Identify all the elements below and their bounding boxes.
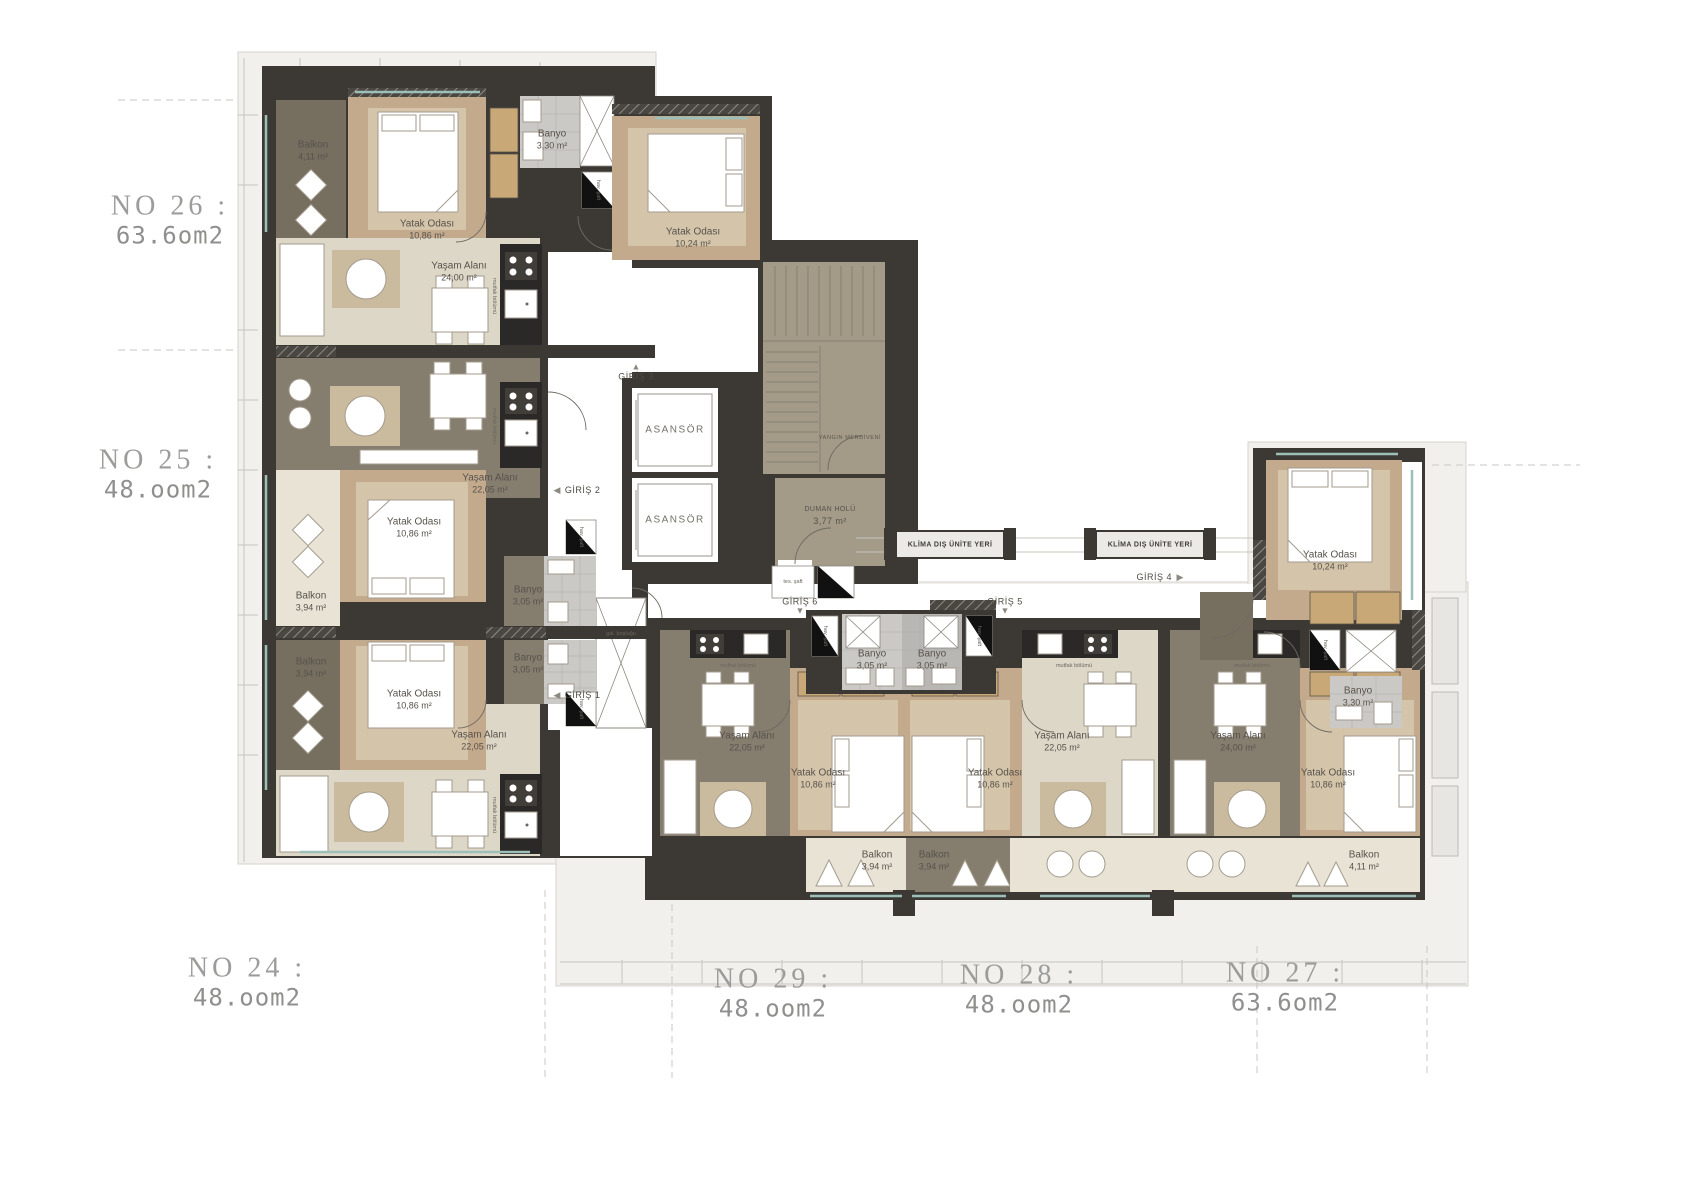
room-name: Yaşam Alanı xyxy=(1210,730,1265,743)
room-label-balkon-25: Balkon 3,94 m² xyxy=(296,590,327,615)
room-area: 10,86 m² xyxy=(968,780,1022,792)
unit-no: NO 27 : xyxy=(1226,958,1344,989)
room-label-yatak-29: Yatak Odası 10,86 m² xyxy=(791,767,845,792)
kitchen-label: mutfak bölümü xyxy=(491,278,497,314)
room-name: Yatak Odası xyxy=(387,516,441,529)
kitchen-label: mutfak bölümü xyxy=(491,797,497,833)
entrance-label: GİRİŞ 3 xyxy=(618,372,654,382)
room-area: 3,05 m² xyxy=(513,665,544,677)
unit-label-27: NO 27 : 63.6om2 xyxy=(1226,958,1344,1015)
room-name: Yatak Odası xyxy=(1301,767,1355,780)
room-name: Yaşam Alanı xyxy=(462,472,517,485)
room-label-balkon-27: Balkon 4,11 m² xyxy=(1349,849,1380,874)
room-label-yasam-29: Yaşam Alanı 22,05 m² xyxy=(719,730,774,755)
room-label-banyo-25: Banyo 3,05 m² xyxy=(513,584,544,609)
room-name: Yaşam Alanı xyxy=(1034,730,1089,743)
unit-area: 48.oom2 xyxy=(99,476,217,502)
room-name: Yaşam Alanı xyxy=(451,729,506,742)
shaft-label-hav: hav. şaft xyxy=(578,527,584,547)
kitchen-label: mutfak bölümü xyxy=(491,408,497,444)
kitchen-label: mutfak bölümü xyxy=(1234,663,1270,669)
room-name: Banyo xyxy=(917,648,948,661)
triangle-down-icon: ▼ xyxy=(782,607,818,616)
room-area: 3,05 m² xyxy=(857,661,888,673)
kitchen-label: mutfak bölümü xyxy=(1056,663,1092,669)
entrance-1: ◀ GİRİŞ 1 xyxy=(554,685,601,703)
room-label-yatak-24: Yatak Odası 10,86 m² xyxy=(387,688,441,713)
room-area: 10,86 m² xyxy=(387,701,441,713)
unit-label-28: NO 28 : 48.oom2 xyxy=(960,960,1078,1017)
room-name: Banyo xyxy=(513,652,544,665)
unit-no: NO 25 : xyxy=(99,445,217,476)
room-area: 10,24 m² xyxy=(666,239,720,251)
room-area: 24,00 m² xyxy=(1210,743,1265,755)
triangle-right-icon: ▶ xyxy=(1177,572,1184,582)
room-area: 10,86 m² xyxy=(791,780,845,792)
room-area: 3,94 m² xyxy=(296,669,327,681)
elevator-label-1: ASANSÖR xyxy=(645,425,704,436)
room-name: Balkon xyxy=(1349,849,1380,862)
fire-stair-label: YANGIN MERDİVENİ xyxy=(819,435,881,441)
room-name: Banyo xyxy=(1343,685,1374,698)
triangle-down-icon: ▼ xyxy=(987,607,1023,616)
room-label-balkon-28: Balkon 3,94 m² xyxy=(919,849,950,874)
room-area: 22,05 m² xyxy=(719,743,774,755)
room-name: Banyo xyxy=(513,584,544,597)
triangle-left-icon: ◀ xyxy=(554,690,561,700)
shaft-label-hav: hav. şaft xyxy=(578,699,584,719)
unit-label-26: NO 26 : 63.6om2 xyxy=(111,191,229,248)
entrance-5: GİRİŞ 5 ▼ xyxy=(987,597,1023,616)
floor-plan-canvas xyxy=(0,0,1697,1200)
unit-label-29: NO 29 : 48.oom2 xyxy=(714,964,832,1021)
room-name: Yaşam Alanı xyxy=(719,730,774,743)
room-label-yasam-28: Yaşam Alanı 22,05 m² xyxy=(1034,730,1089,755)
shaft-label-tes: tes. şaft xyxy=(783,579,802,585)
room-name: Yatak Odası xyxy=(968,767,1022,780)
shaft-label-hav: hav. şaft xyxy=(595,180,601,200)
room-name: Balkon xyxy=(298,139,329,152)
entrance-label: GİRİŞ 2 xyxy=(565,485,601,495)
room-area: 22,05 m² xyxy=(1034,743,1089,755)
room-area: 3,30 m² xyxy=(537,141,568,153)
room-label-yasam-26: Yaşam Alanı 24,00 m² xyxy=(431,260,486,285)
unit-no: NO 29 : xyxy=(714,964,832,995)
room-label-yatak-28: Yatak Odası 10,86 m² xyxy=(968,767,1022,792)
entrance-3: ▲ GİRİŞ 3 xyxy=(618,363,654,382)
entrance-4: GİRİŞ 4 ▶ xyxy=(1137,567,1184,585)
room-area: 10,86 m² xyxy=(387,529,441,541)
room-label-banyo-29: Banyo 3,05 m² xyxy=(857,648,888,673)
room-label-banyo-27: Banyo 3,30 m² xyxy=(1343,685,1374,710)
room-area: 22,05 m² xyxy=(462,485,517,497)
klima-label-1: KLİMA DIŞ ÜNİTE YERİ xyxy=(908,542,993,549)
room-area: 3,94 m² xyxy=(862,862,893,874)
elevator-label-2: ASANSÖR xyxy=(645,515,704,526)
room-name: Balkon xyxy=(862,849,893,862)
triangle-up-icon: ▲ xyxy=(618,363,654,372)
shaft-label-hav: hav. şaft xyxy=(1322,640,1328,660)
gallery-void-label: gal. boşluğu xyxy=(606,631,636,637)
room-name: DUMAN HOLÜ xyxy=(804,505,855,515)
room-label-yatak1-27: Yatak Odası 10,86 m² xyxy=(1301,767,1355,792)
room-area: 4,11 m² xyxy=(1349,862,1380,874)
unit-no: NO 26 : xyxy=(111,191,229,222)
room-label-balkon-26: Balkon 4,11 m² xyxy=(298,139,329,164)
unit-no: NO 28 : xyxy=(960,960,1078,991)
room-name: Yatak Odası xyxy=(791,767,845,780)
room-name: Yatak Odası xyxy=(1303,549,1357,562)
room-label-banyo-26: Banyo 3,30 m² xyxy=(537,128,568,153)
unit-area: 63.6om2 xyxy=(111,222,229,248)
room-area: 10,86 m² xyxy=(1301,780,1355,792)
room-name: Yatak Odası xyxy=(400,218,454,231)
shaft-label-hav: hav. şaft xyxy=(976,626,982,646)
unit-area: 48.oom2 xyxy=(960,991,1078,1017)
room-area: 22,05 m² xyxy=(451,742,506,754)
unit-label-24: NO 24 : 48.oom2 xyxy=(188,953,306,1010)
room-label-banyo-28: Banyo 3,05 m² xyxy=(917,648,948,673)
room-label-yasam-25: Yaşam Alanı 22,05 m² xyxy=(462,472,517,497)
kitchen-label: mutfak bölümü xyxy=(720,663,756,669)
unit-no: NO 24 : xyxy=(188,953,306,984)
entrance-6: GİRİŞ 6 ▼ xyxy=(782,597,818,616)
room-label-yasam-24: Yaşam Alanı 22,05 m² xyxy=(451,729,506,754)
room-area: 3,30 m² xyxy=(1343,698,1374,710)
entrance-label: GİRİŞ 4 xyxy=(1137,572,1173,582)
smoke-hall-label: DUMAN HOLÜ 3,77 m² xyxy=(804,505,855,527)
triangle-left-icon: ◀ xyxy=(554,485,561,495)
bath-block-bottom xyxy=(806,610,996,694)
room-area: 3,05 m² xyxy=(917,661,948,673)
room-name: Yaşam Alanı xyxy=(431,260,486,273)
floor-plan-page: NO 26 : 63.6om2 NO 25 : 48.oom2 NO 24 : … xyxy=(0,0,1697,1200)
stair-core xyxy=(763,262,885,598)
room-area: 3,94 m² xyxy=(296,603,327,615)
room-area: 24,00 m² xyxy=(431,273,486,285)
room-area: 10,86 m² xyxy=(400,231,454,243)
room-name: Banyo xyxy=(857,648,888,661)
room-name: Balkon xyxy=(296,656,327,669)
room-label-balkon-24: Balkon 3,94 m² xyxy=(296,656,327,681)
entrance-2: ◀ GİRİŞ 2 xyxy=(554,480,601,498)
room-name: Yatak Odası xyxy=(387,688,441,701)
room-label-yasam-27: Yaşam Alanı 24,00 m² xyxy=(1210,730,1265,755)
room-area: 3,94 m² xyxy=(919,862,950,874)
unit-area: 48.oom2 xyxy=(188,984,306,1010)
klima-label-2: KLİMA DIŞ ÜNİTE YERİ xyxy=(1108,542,1193,549)
room-label-banyo-24: Banyo 3,05 m² xyxy=(513,652,544,677)
room-name: Balkon xyxy=(296,590,327,603)
room-area: 4,11 m² xyxy=(298,152,329,164)
elevator-shaft xyxy=(622,378,728,570)
room-label-yatak-25: Yatak Odası 10,86 m² xyxy=(387,516,441,541)
room-label-balkon-29: Balkon 3,94 m² xyxy=(862,849,893,874)
room-label-yatak2-27: Yatak Odası 10,24 m² xyxy=(1303,549,1357,574)
unit-area: 48.oom2 xyxy=(714,995,832,1021)
room-name: Yatak Odası xyxy=(666,226,720,239)
room-area: 3,05 m² xyxy=(513,597,544,609)
room-area: 10,24 m² xyxy=(1303,562,1357,574)
room-area: 3,77 m² xyxy=(804,515,855,528)
room-label-yatak1-26: Yatak Odası 10,86 m² xyxy=(400,218,454,243)
room-label-yatak2-26: Yatak Odası 10,24 m² xyxy=(666,226,720,251)
room-name: Balkon xyxy=(919,849,950,862)
unit-area: 63.6om2 xyxy=(1226,989,1344,1015)
room-name: Banyo xyxy=(537,128,568,141)
unit-label-25: NO 25 : 48.oom2 xyxy=(99,445,217,502)
shaft-label-hav: hav. şaft xyxy=(822,626,828,646)
